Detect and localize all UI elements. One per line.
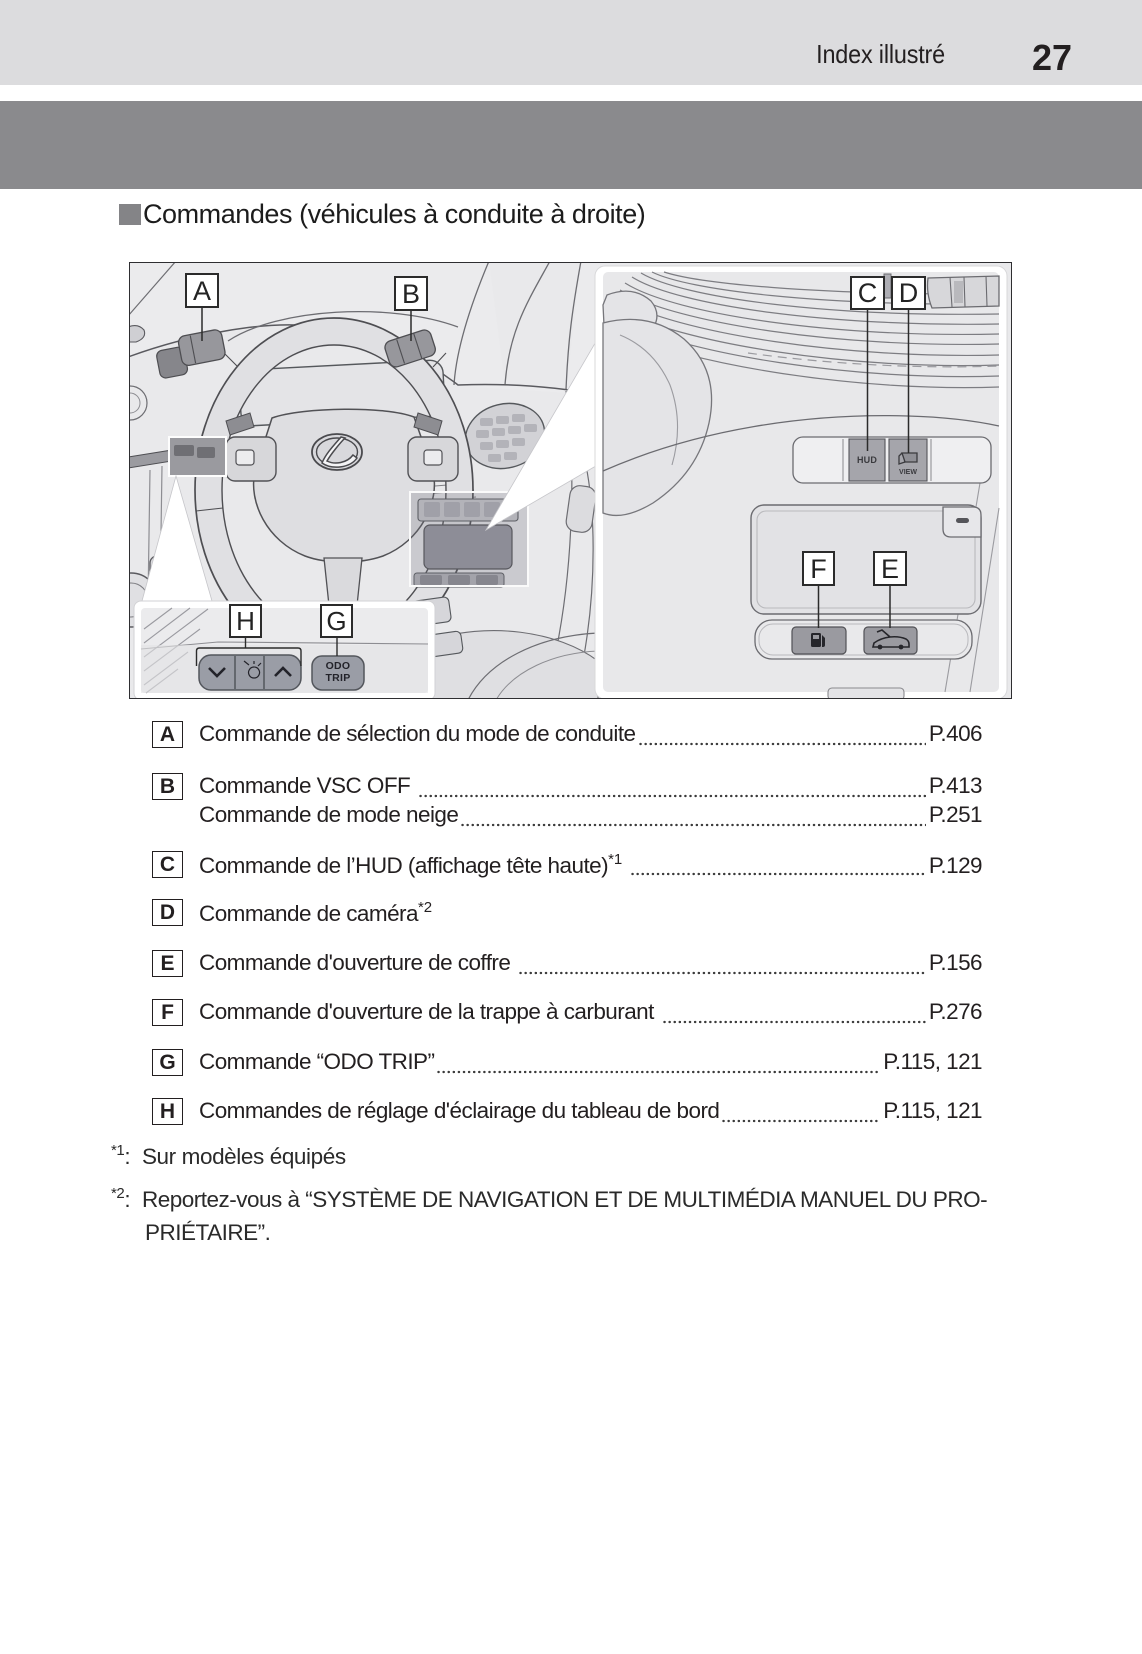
svg-text:A: A <box>193 276 211 306</box>
svg-text:HUD: HUD <box>857 455 877 465</box>
svg-text:C: C <box>858 278 878 308</box>
svg-text:D: D <box>899 278 919 308</box>
svg-text:F: F <box>810 554 827 584</box>
svg-text:B: B <box>402 279 420 309</box>
svg-text:H: H <box>236 606 255 636</box>
svg-text:ODO: ODO <box>326 660 351 672</box>
svg-text:VIEW: VIEW <box>899 469 917 476</box>
svg-text:E: E <box>881 554 899 584</box>
svg-text:G: G <box>326 606 346 636</box>
svg-text:TRIP: TRIP <box>325 672 350 684</box>
